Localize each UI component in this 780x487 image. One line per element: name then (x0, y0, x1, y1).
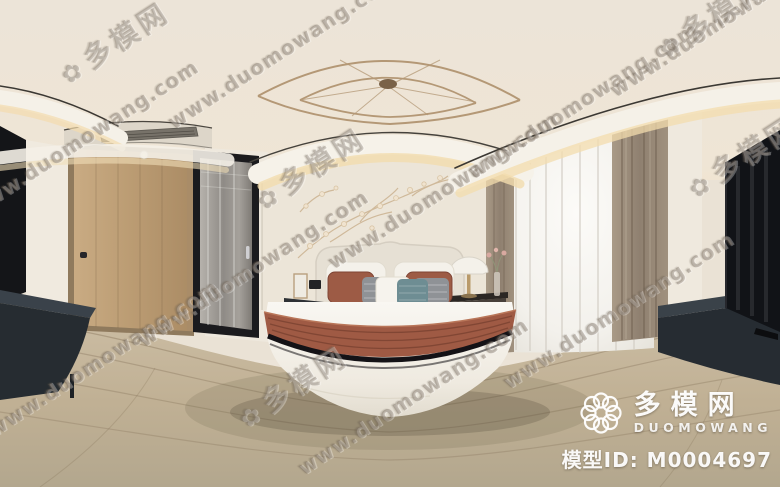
model-id-label: 模型ID: (562, 448, 639, 472)
pillow-teal (397, 279, 428, 306)
chandelier-canopy (379, 79, 397, 89)
right-tv (726, 130, 780, 340)
door-handle (80, 252, 87, 258)
panorama-bedroom-screenshot: www.duomowang.com www.duomowang.com www.… (0, 0, 780, 487)
knot-flower-icon (578, 390, 624, 436)
logo-text-cn: 多模网 (634, 391, 745, 421)
candle-lantern (294, 274, 307, 298)
logo-text-en: DUOMOWANG (634, 420, 772, 435)
left-wall (26, 140, 72, 322)
glass-door-handle (246, 246, 250, 259)
decor-object (309, 280, 321, 289)
model-id-value: M0004697 (647, 448, 772, 472)
model-id-line: 模型ID: M0004697 (562, 444, 772, 473)
duomowang-logo: 多模网 DUOMOWANG 模型ID: M0004697 (562, 390, 772, 473)
